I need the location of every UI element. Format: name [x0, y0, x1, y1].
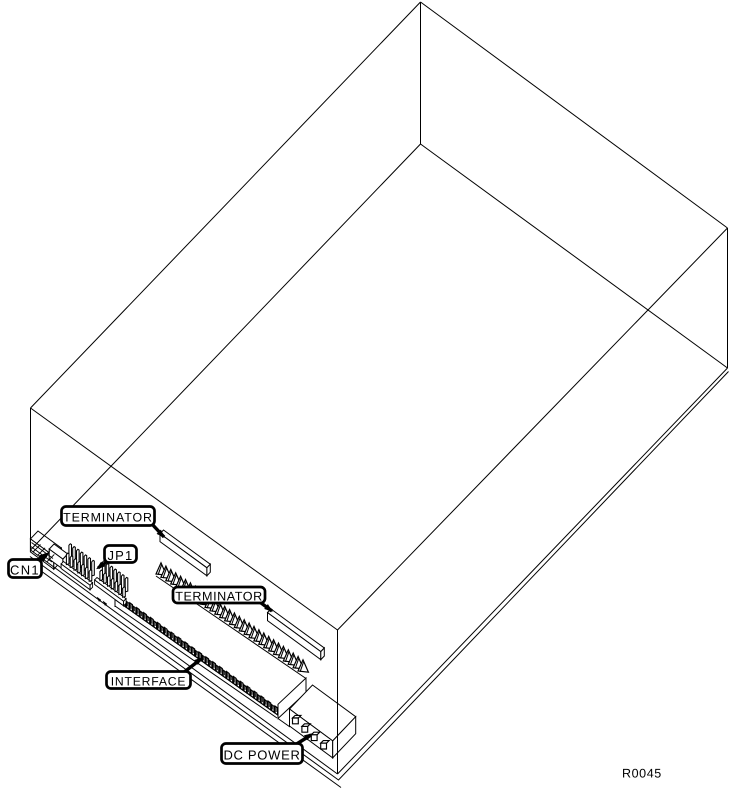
svg-text:INTERFACE: INTERFACE	[111, 675, 187, 689]
svg-text:TERMINATOR: TERMINATOR	[63, 511, 153, 525]
svg-text:R0045: R0045	[622, 767, 662, 781]
svg-text:TERMINATOR: TERMINATOR	[175, 590, 263, 604]
svg-text:DC POWER: DC POWER	[223, 747, 300, 762]
svg-text:JP1: JP1	[107, 548, 133, 563]
svg-text:CN1: CN1	[10, 562, 40, 577]
